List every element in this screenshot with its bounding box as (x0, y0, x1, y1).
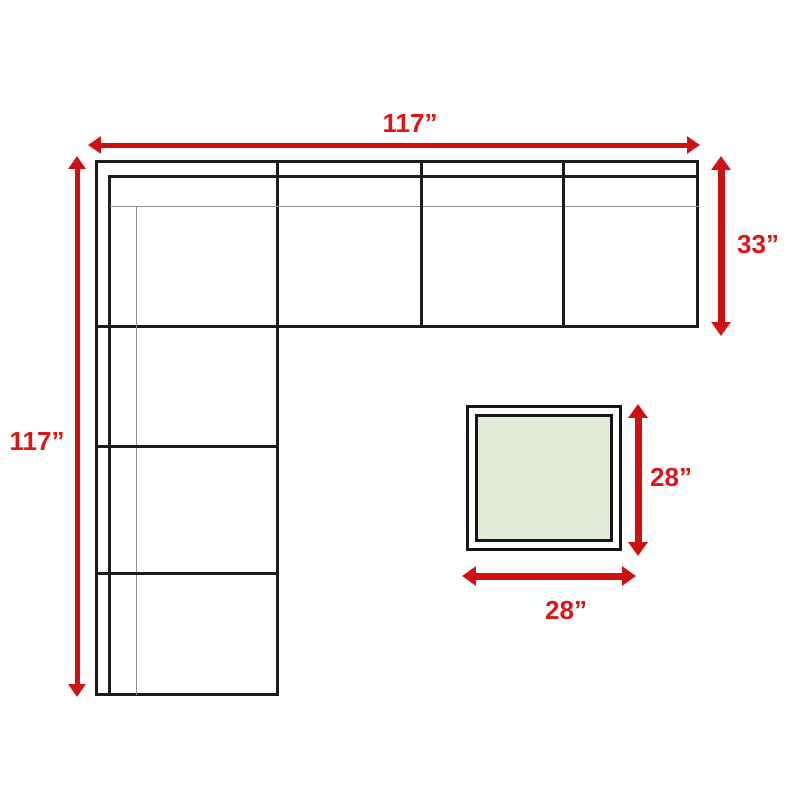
ottoman-outline (466, 405, 622, 551)
arrow-head-down-icon (711, 322, 731, 336)
sofa-outline-left (95, 160, 98, 696)
section-divider-top-1 (420, 160, 423, 328)
sofa-arm-front-line (95, 325, 699, 328)
section-divider-left-2 (95, 572, 279, 575)
ottoman-depth-label: 28” (633, 464, 709, 490)
sofa-column-right-line (276, 160, 279, 696)
ottoman-width-label: 28” (528, 597, 604, 623)
sofa-depth-arrow (68, 156, 86, 697)
sofa-outline-right (696, 160, 699, 328)
sofa-outline-top (95, 160, 699, 163)
arrow-head-right-icon (622, 566, 636, 586)
sofa-width-label: 117” (370, 110, 450, 136)
sofa-cushion-seam-top (110, 206, 699, 207)
arrow-head-down-icon (628, 542, 648, 556)
section-divider-top-2 (562, 160, 565, 328)
arrow-head-right-icon (687, 136, 700, 154)
sofa-cushion-seam-left (136, 206, 137, 695)
sofa-backrail-top-line (108, 175, 699, 178)
dimension-diagram: 117” 117” 33” 28” 28” (0, 0, 800, 800)
section-divider-left-1 (95, 445, 279, 448)
ottoman-width-arrow (462, 566, 636, 586)
sofa-width-arrow (88, 136, 700, 154)
ottoman-cushion (475, 414, 613, 542)
section-depth-label: 33” (720, 231, 796, 257)
sofa-outline-bottom (95, 693, 279, 696)
arrow-shaft (99, 143, 689, 148)
arrow-head-down-icon (68, 684, 86, 697)
arrow-shaft (473, 573, 625, 580)
sofa-backrail-left-line (108, 175, 111, 696)
sofa-depth-label: 117” (0, 428, 74, 454)
arrow-shaft (75, 167, 80, 686)
